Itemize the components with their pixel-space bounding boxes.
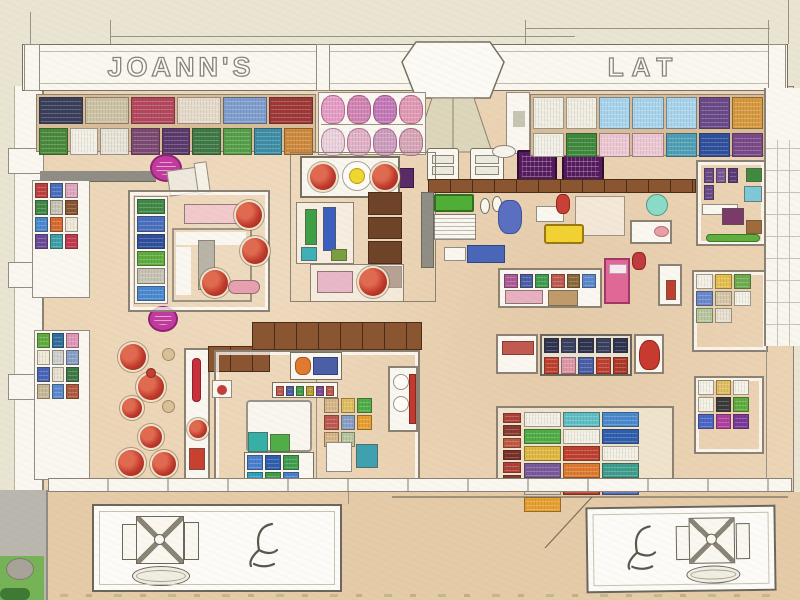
- media-shelf: [540, 334, 632, 376]
- round-display: [152, 452, 176, 476]
- plate-display: [342, 161, 372, 191]
- merchandise-swatch: [524, 463, 561, 478]
- merchandise-swatch: [137, 268, 165, 283]
- facade-pilaster: [316, 44, 330, 91]
- display-room-c: [694, 376, 764, 454]
- green-bolt: [305, 209, 317, 245]
- merchandise-swatch: [732, 97, 763, 129]
- monitor: [689, 517, 736, 564]
- merchandise-swatch: [520, 274, 534, 288]
- merchandise-swatch: [131, 97, 175, 124]
- back-wall: [764, 88, 800, 140]
- merchandise-swatch: [698, 397, 714, 412]
- shelf-row: [531, 131, 765, 159]
- merchandise-swatch: [286, 386, 294, 396]
- crate-display: [322, 396, 384, 440]
- wreath-display: [359, 268, 387, 296]
- pink-fabric-table: [604, 258, 630, 304]
- round-display: [122, 398, 142, 418]
- sign-lat-text: LAT: [608, 52, 681, 82]
- exterior-dashes: [60, 594, 780, 597]
- merchandise-swatch: [39, 128, 68, 155]
- shelf-row: [37, 126, 315, 157]
- merchandise-swatch: [596, 338, 611, 353]
- merchandise-swatch: [732, 133, 763, 157]
- gondola-bay: [368, 192, 402, 215]
- green-runner: [706, 234, 760, 242]
- merchandise-swatch: [563, 412, 600, 427]
- merchandise-swatch: [704, 168, 714, 183]
- sewing-table: [246, 400, 312, 452]
- merchandise-swatch: [561, 338, 576, 353]
- merchandise-swatch: [162, 128, 191, 155]
- merchandise-swatch: [52, 384, 65, 399]
- red-strip: [409, 374, 416, 424]
- merchandise-swatch: [324, 415, 339, 430]
- merchandise-swatch: [37, 367, 50, 382]
- pattern-case: [434, 214, 476, 240]
- merchandise-swatch: [223, 97, 267, 124]
- bottom-wall: [48, 478, 792, 492]
- merchandise-swatch: [131, 128, 160, 155]
- stool: [162, 348, 175, 361]
- merchandise-swatch: [733, 414, 749, 429]
- merchandise-swatch: [35, 183, 48, 198]
- merchandise-swatch: [728, 168, 738, 183]
- merchandise-swatch: [716, 168, 726, 183]
- merchandise-swatch: [566, 97, 597, 129]
- cutting-counter: [630, 220, 672, 244]
- merchandise-swatch: [666, 97, 697, 129]
- merchandise-swatch: [544, 357, 559, 374]
- merchandise-swatch: [551, 274, 565, 288]
- wall-edge-line: [788, 0, 789, 44]
- merchandise-swatch: [50, 183, 63, 198]
- merchandise-swatch: [66, 367, 79, 382]
- aisle-header-bar: [428, 179, 696, 193]
- denim-display: [467, 245, 505, 263]
- yarn-row: [319, 93, 425, 126]
- merchandise-swatch: [666, 133, 697, 157]
- red-dot: [217, 385, 227, 395]
- merchandise-swatch: [50, 234, 63, 249]
- merchandise-swatch: [715, 291, 732, 306]
- crate: [746, 220, 762, 234]
- yellow-plate: [349, 168, 365, 184]
- desk-wing: [184, 522, 199, 560]
- merchandise-swatch: [699, 133, 730, 157]
- merchandise-swatch: [733, 380, 749, 395]
- merchandise-swatch: [698, 380, 714, 395]
- merchandise-swatch: [613, 338, 628, 353]
- store-floor-plan: JOANN'S LAT: [0, 0, 800, 600]
- pink-sofa-display: [228, 280, 260, 294]
- green-sale-sign: [434, 194, 474, 212]
- dimension-tick: [525, 20, 526, 45]
- round-display: [140, 426, 162, 448]
- merchandise-swatch: [602, 446, 639, 461]
- merchandise-swatch: [373, 95, 397, 124]
- teal-box: [744, 186, 762, 202]
- facade-pilaster: [768, 44, 786, 91]
- wreath-bowl: [310, 164, 336, 190]
- storefront-sign-lat: LAT: [574, 46, 714, 88]
- merchandise-swatch: [632, 97, 663, 129]
- storefront-sign-joanns: JOANN'S: [70, 46, 292, 88]
- merchandise-swatch: [563, 446, 600, 461]
- dog-figure: [492, 145, 516, 158]
- merchandise-swatch: [52, 350, 65, 365]
- merchandise-swatch: [561, 357, 576, 374]
- mannequin: [480, 198, 490, 214]
- desk-station: [676, 515, 753, 586]
- wreath-display: [236, 202, 262, 228]
- orange-display-table: [290, 352, 342, 380]
- fabric-bolt-shelf: [134, 196, 168, 304]
- merchandise-swatch: [223, 128, 252, 155]
- shelf-row: [37, 95, 315, 126]
- merchandise-swatch: [283, 455, 299, 470]
- merchandise-swatch: [734, 291, 751, 306]
- dimension-tick: [30, 12, 31, 46]
- merchandise-swatch: [316, 386, 324, 396]
- purple-machine: [722, 208, 744, 225]
- merchandise-swatch: [269, 97, 313, 124]
- craft-table: [326, 442, 352, 472]
- merchandise-swatch: [247, 455, 263, 470]
- desk-station: [122, 514, 202, 588]
- merchandise-swatch: [35, 217, 48, 232]
- wreath-display: [189, 420, 207, 438]
- merchandise-swatch: [276, 386, 284, 396]
- merchandise-swatch: [696, 291, 713, 306]
- merchandise-swatch: [399, 95, 423, 124]
- dimension-line-top-right: [525, 28, 770, 29]
- merchandise-swatch: [326, 386, 334, 396]
- merchandise-swatch: [192, 128, 221, 155]
- merchandise-swatch: [613, 357, 628, 374]
- promo-banner: [184, 204, 240, 224]
- round-display: [120, 344, 146, 370]
- bedding-room: [310, 264, 404, 302]
- merchandise-swatch: [254, 128, 283, 155]
- orange-blob: [295, 357, 311, 375]
- merchandise-swatch: [66, 384, 79, 399]
- merchandise-swatch: [602, 429, 639, 444]
- merchandise-block: [496, 406, 674, 488]
- pink-item: [654, 226, 669, 237]
- facade-pilaster: [24, 44, 40, 91]
- desk-wing: [676, 526, 690, 560]
- round-goods-case: [388, 366, 418, 432]
- vestibule-shape: [402, 42, 504, 98]
- merchandise-swatch: [100, 128, 129, 155]
- merchandise-swatch: [503, 462, 521, 472]
- sign-joanns-text: JOANN'S: [108, 52, 255, 82]
- red-box: [189, 448, 205, 470]
- merchandise-swatch: [698, 414, 714, 429]
- merchandise-swatch: [535, 274, 549, 288]
- wall-shelf-section: [32, 180, 90, 298]
- aisle-end-cap: [421, 192, 434, 268]
- merchandise-swatch: [37, 384, 50, 399]
- machine-room: [296, 202, 354, 264]
- merchandise-swatch: [65, 234, 78, 249]
- teal-sewing-machine: [248, 432, 268, 452]
- red-bottle: [666, 280, 676, 300]
- merchandise-swatch: [503, 425, 521, 435]
- merchandise-swatch: [137, 234, 165, 249]
- merchandise-swatch: [699, 97, 730, 129]
- red-bolt: [192, 358, 201, 402]
- merchandise-swatch: [524, 446, 561, 461]
- wall-shelving-top-right: [530, 94, 766, 156]
- merchandise-swatch: [704, 185, 714, 200]
- merchandise-swatch: [524, 412, 561, 427]
- pink-mattress: [317, 271, 353, 293]
- merchandise-swatch: [296, 386, 304, 396]
- merchandise-swatch: [52, 367, 65, 382]
- merchandise-swatch: [544, 338, 559, 353]
- merchandise-swatch: [66, 333, 79, 348]
- merchandise-swatch: [65, 200, 78, 215]
- merchandise-swatch: [265, 455, 281, 470]
- dimension-tick: [110, 20, 111, 46]
- small-table: [444, 247, 466, 261]
- connector-tick: [348, 492, 349, 504]
- notice-card: [513, 111, 525, 127]
- merchandise-swatch: [733, 397, 749, 412]
- desk-wing: [122, 524, 137, 560]
- merchandise-swatch: [599, 97, 630, 129]
- merchandise-swatch: [177, 97, 221, 124]
- red-goods: [502, 341, 534, 355]
- merchandise-swatch: [578, 357, 593, 374]
- monitor: [136, 516, 184, 564]
- merchandise-swatch: [578, 338, 593, 353]
- shelf-row: [531, 95, 765, 131]
- red-chair: [632, 252, 646, 270]
- cart-glyph: [475, 166, 499, 175]
- merchandise-swatch: [596, 357, 611, 374]
- merchandise-swatch: [50, 200, 63, 215]
- teal-yarn-blob: [646, 194, 668, 216]
- dimension-line-top: [110, 36, 575, 37]
- red-blob-case: [634, 334, 664, 374]
- merchandise-swatch: [563, 429, 600, 444]
- merchandise-swatch: [504, 274, 518, 288]
- merchandise-swatch: [37, 333, 50, 348]
- wall-shelving-top-left: [36, 94, 316, 152]
- shelf-line: [321, 124, 423, 125]
- shelf-row: [542, 336, 630, 355]
- yellow-table: [544, 224, 584, 244]
- teal-machine: [301, 247, 317, 261]
- merchandise-swatch: [715, 274, 732, 289]
- merchandise-swatch: [582, 274, 596, 288]
- blue-kit: [313, 357, 338, 375]
- notions-row: [502, 272, 598, 290]
- dimension-tick: [768, 20, 769, 45]
- tray: [132, 566, 190, 586]
- merchandise-swatch: [734, 274, 751, 289]
- merchandise-swatch: [137, 286, 165, 301]
- wall-line: [766, 348, 767, 486]
- merchandise-swatch: [137, 251, 165, 266]
- merchandise-swatch: [137, 216, 165, 231]
- yarn-wall-shelving: [318, 92, 426, 155]
- wreath-bowl: [372, 164, 398, 190]
- merchandise-swatch: [65, 183, 78, 198]
- merchandise-swatch: [341, 415, 356, 430]
- merchandise-swatch: [35, 200, 48, 215]
- small-red-table: [212, 380, 232, 398]
- gondola-run: [252, 322, 422, 350]
- red-blob: [639, 340, 660, 370]
- red-ornament: [146, 368, 156, 378]
- tall-display-case: [184, 348, 210, 480]
- back-room-grid: [764, 140, 800, 346]
- merchandise-swatch: [563, 463, 600, 478]
- merchandise-swatch: [503, 450, 521, 460]
- merchandise-swatch: [341, 398, 356, 413]
- shelf-row: [542, 355, 630, 376]
- tray: [686, 565, 740, 584]
- cutting-table: [585, 505, 776, 594]
- green-machine: [746, 168, 762, 182]
- white-wheel: [393, 396, 409, 412]
- merchandise-swatch: [85, 97, 129, 124]
- merchandise-swatch: [35, 234, 48, 249]
- merchandise-swatch: [503, 413, 521, 423]
- merchandise-swatch: [602, 463, 639, 478]
- tall-case-small: [658, 264, 682, 306]
- merchandise-swatch: [52, 333, 65, 348]
- chair-glyph: [622, 522, 663, 573]
- gondola-bay: [368, 217, 402, 240]
- merchandise-swatch: [324, 398, 339, 413]
- chair-glyph: [244, 520, 284, 570]
- merchandise-swatch: [321, 95, 345, 124]
- merchandise-swatch: [50, 217, 63, 232]
- white-wheel: [393, 374, 409, 390]
- merchandise-swatch: [533, 97, 564, 129]
- wreath-display: [202, 270, 228, 296]
- merchandise-swatch: [632, 133, 663, 157]
- round-display: [118, 450, 144, 476]
- wreath-display: [242, 238, 268, 264]
- green-machine: [270, 434, 290, 452]
- red-mannequin-form: [556, 194, 570, 214]
- merchandise-swatch: [696, 308, 713, 323]
- stool: [162, 400, 175, 413]
- merchandise-swatch: [566, 133, 597, 157]
- merchandise-swatch: [599, 133, 630, 157]
- merchandise-swatch: [284, 128, 313, 155]
- pink-bolt: [505, 290, 543, 304]
- merchandise-swatch: [567, 274, 581, 288]
- merchandise-swatch: [716, 380, 732, 395]
- merchandise-swatch: [602, 412, 639, 427]
- merchandise-swatch: [66, 350, 79, 365]
- monitor-hub: [706, 533, 717, 544]
- merchandise-swatch: [716, 414, 732, 429]
- fabric-case: [498, 268, 602, 308]
- pillow: [609, 264, 627, 274]
- olive-box: [331, 249, 347, 261]
- merchandise-swatch: [696, 274, 713, 289]
- merchandise-swatch: [357, 398, 372, 413]
- merchandise-swatch: [70, 128, 99, 155]
- wall-notice-board: [506, 92, 530, 154]
- blue-dress-display: [498, 200, 522, 234]
- monitor-hub: [154, 534, 165, 545]
- wall-shelf-section: [34, 330, 90, 480]
- merchandise-swatch: [503, 438, 521, 448]
- merchandise-swatch: [39, 97, 83, 124]
- table-left: [176, 247, 191, 295]
- cutting-table: [92, 504, 342, 592]
- stepping-stone: [6, 558, 34, 580]
- merchandise-swatch: [137, 199, 165, 214]
- gondola-bay: [368, 241, 402, 264]
- display-room-a: [696, 160, 766, 246]
- merchandise-swatch: [347, 95, 371, 124]
- merchandise-swatch: [306, 386, 314, 396]
- merchandise-swatch: [37, 350, 50, 365]
- red-goods-column: [501, 411, 523, 487]
- merchandise-swatch: [716, 397, 732, 412]
- desk-wing: [736, 523, 751, 559]
- teal-boxes: [356, 444, 378, 468]
- tan-bolt: [548, 290, 578, 306]
- small-display: [496, 334, 538, 374]
- merchandise-swatch: [715, 308, 732, 323]
- purple-shelf: [702, 166, 746, 206]
- merchandise-swatch: [65, 217, 78, 232]
- display-room-b: [692, 270, 768, 352]
- merchandise-swatch: [524, 429, 561, 444]
- blue-bolt: [323, 207, 336, 251]
- merchandise-swatch: [357, 415, 372, 430]
- merchandise-swatch: [533, 133, 564, 157]
- bush: [0, 588, 30, 600]
